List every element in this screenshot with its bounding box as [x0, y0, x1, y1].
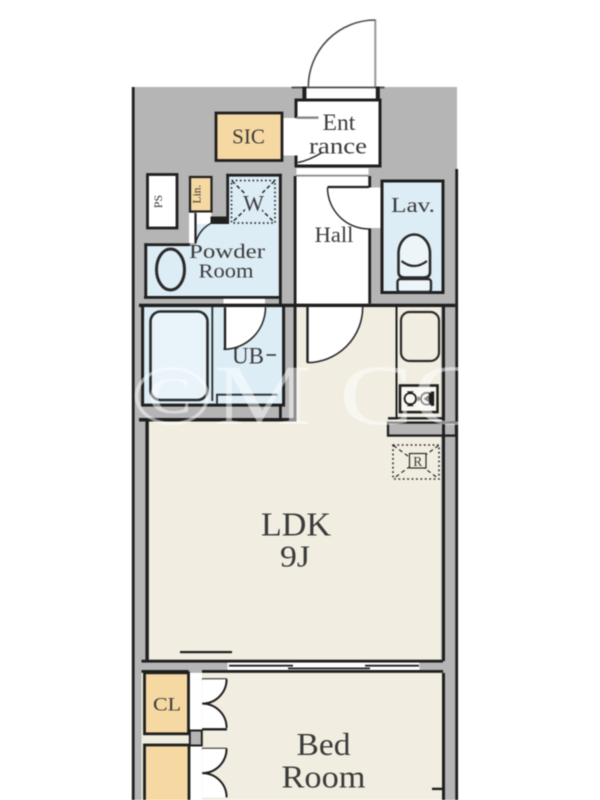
- svg-text:PS: PS: [151, 195, 165, 208]
- svg-text:Lin.: Lin.: [192, 184, 204, 203]
- svg-text:Room: Room: [282, 759, 366, 795]
- svg-text:CL: CL: [153, 695, 181, 716]
- svg-text:SIC: SIC: [232, 125, 265, 149]
- svg-text:Ent: Ent: [323, 110, 356, 136]
- svg-text:W: W: [243, 191, 264, 216]
- svg-text:©M COS: ©M COS: [130, 347, 554, 443]
- svg-text:4.8J: 4.8J: [299, 794, 349, 800]
- svg-text:R: R: [413, 454, 422, 469]
- svg-text:Hall: Hall: [315, 222, 354, 247]
- svg-text:Bed: Bed: [297, 726, 351, 762]
- svg-text:Lav.: Lav.: [391, 193, 435, 217]
- svg-text:9J: 9J: [280, 539, 310, 574]
- svg-text:Room: Room: [199, 260, 254, 282]
